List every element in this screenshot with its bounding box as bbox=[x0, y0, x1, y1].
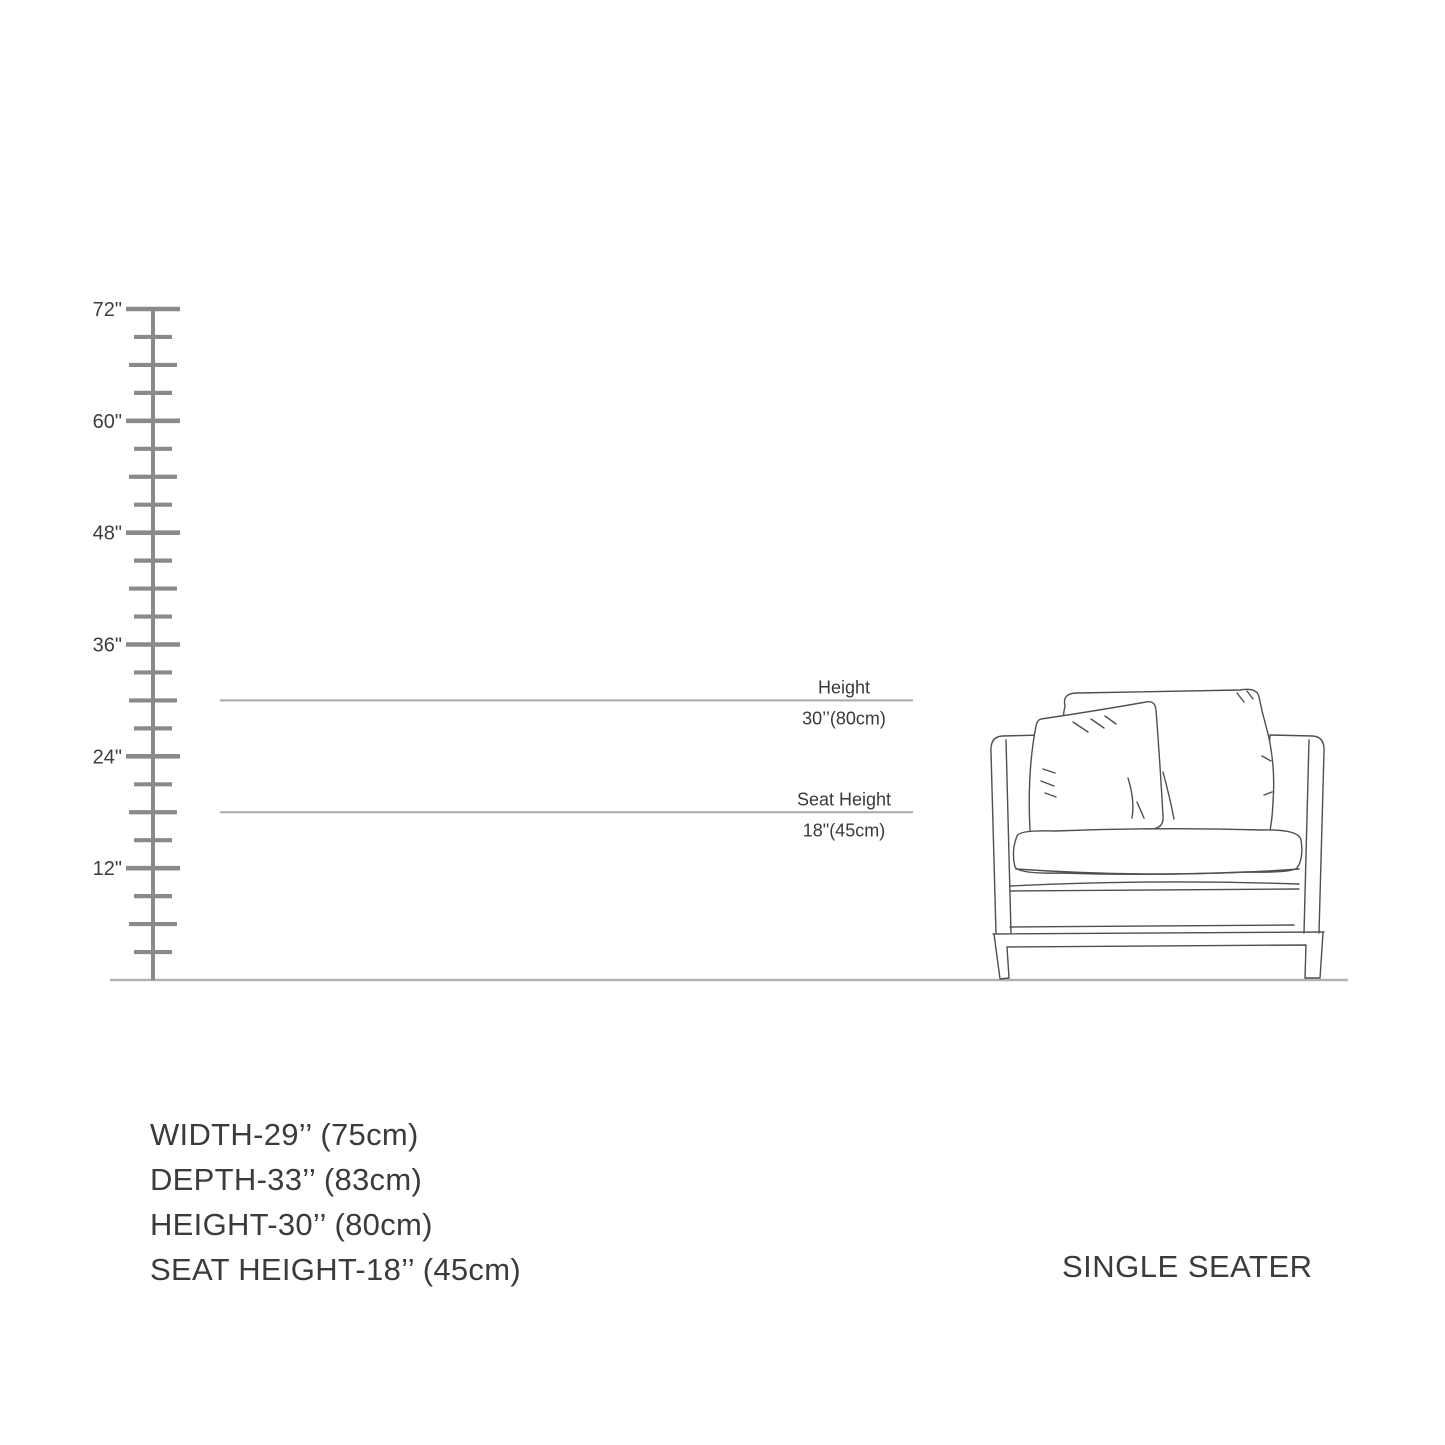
product-label: SINGLE SEATER bbox=[1062, 1249, 1313, 1285]
spec-line-width: WIDTH-29’’ (75cm) bbox=[150, 1112, 521, 1157]
dimension-specs: WIDTH-29’’ (75cm) DEPTH-33’’ (83cm) HEIG… bbox=[150, 1112, 521, 1292]
chair-base-frame bbox=[993, 932, 1324, 979]
ruler-label-24: 24" bbox=[93, 746, 122, 768]
height-dimension-label: Height bbox=[818, 677, 870, 697]
dimension-annotations: Height30’’(80cm)Seat Height18"(45cm) bbox=[220, 677, 913, 840]
ruler-label-60: 60" bbox=[93, 411, 122, 433]
ruler-label-48: 48" bbox=[93, 523, 122, 545]
ruler-label-12: 12" bbox=[93, 858, 122, 880]
spec-line-height: HEIGHT-30’’ (80cm) bbox=[150, 1202, 521, 1247]
furniture-spec-sheet: 72"60"48"36"24"12" Height30’’(80cm)Seat … bbox=[0, 0, 1445, 1445]
chair-seat-rails bbox=[1010, 882, 1299, 891]
ruler-label-72: 72" bbox=[93, 299, 122, 321]
chair-seat-cushion bbox=[1013, 829, 1302, 875]
height-dimension-value: 30’’(80cm) bbox=[802, 708, 886, 728]
seat-height-dimension-value: 18"(45cm) bbox=[803, 820, 885, 840]
seat-height-dimension-label: Seat Height bbox=[797, 789, 891, 809]
ruler-label-36: 36" bbox=[93, 635, 122, 657]
spec-line-seat-height: SEAT HEIGHT-18’’ (45cm) bbox=[150, 1247, 521, 1292]
armchair-illustration bbox=[991, 689, 1324, 979]
chair-front-panel-line bbox=[1010, 925, 1294, 927]
height-ruler: 72"60"48"36"24"12" bbox=[93, 299, 180, 980]
spec-line-depth: DEPTH-33’’ (83cm) bbox=[150, 1157, 521, 1202]
